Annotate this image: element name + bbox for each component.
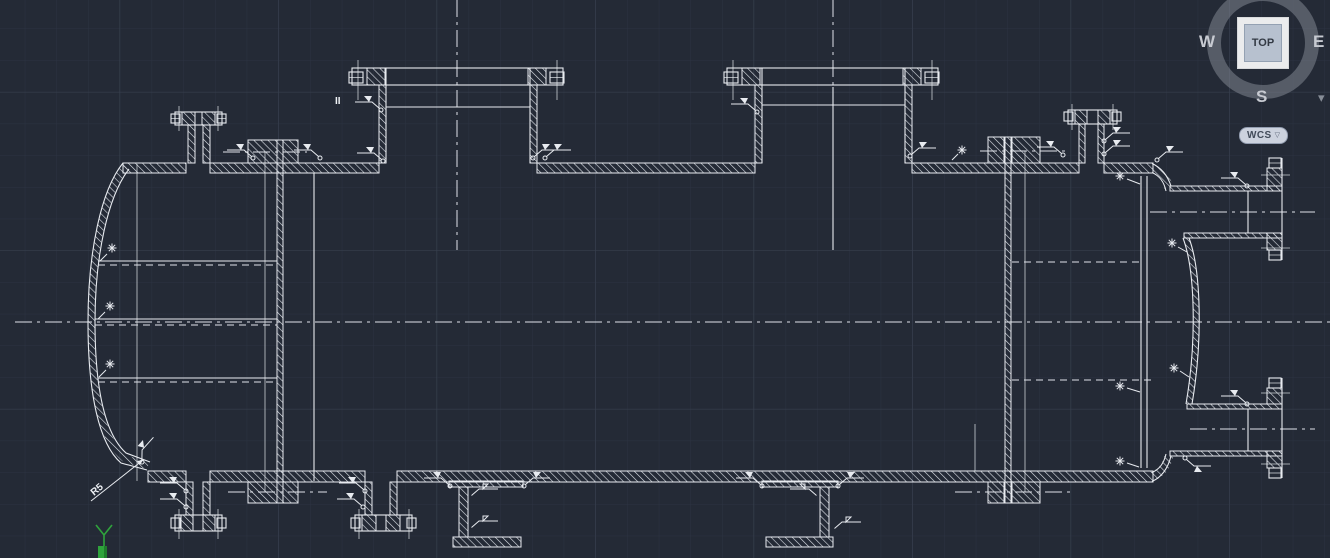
seam-label: II	[335, 96, 341, 107]
viewcube-top-face-label[interactable]: TOP	[1244, 24, 1282, 62]
viewcube-menu-arrow-icon[interactable]: ▾	[1318, 90, 1325, 106]
viewcube-top-face[interactable]: TOP	[1237, 17, 1289, 69]
wcs-dropdown[interactable]: WCS ▽	[1239, 127, 1288, 144]
viewcube-west[interactable]: W	[1199, 33, 1215, 50]
viewcube-south[interactable]: S	[1256, 88, 1267, 105]
chevron-down-icon: ▽	[1275, 132, 1280, 139]
drawing-canvas[interactable]: R5 II	[0, 0, 1330, 558]
left-tubesheet	[277, 140, 283, 503]
wcs-dropdown-label: WCS	[1247, 130, 1272, 141]
cad-viewport[interactable]: R5 II W E S TOP ▾ WCS ▽	[0, 0, 1330, 558]
viewcube-east[interactable]: E	[1313, 33, 1324, 50]
right-tubesheet	[1005, 137, 1011, 503]
